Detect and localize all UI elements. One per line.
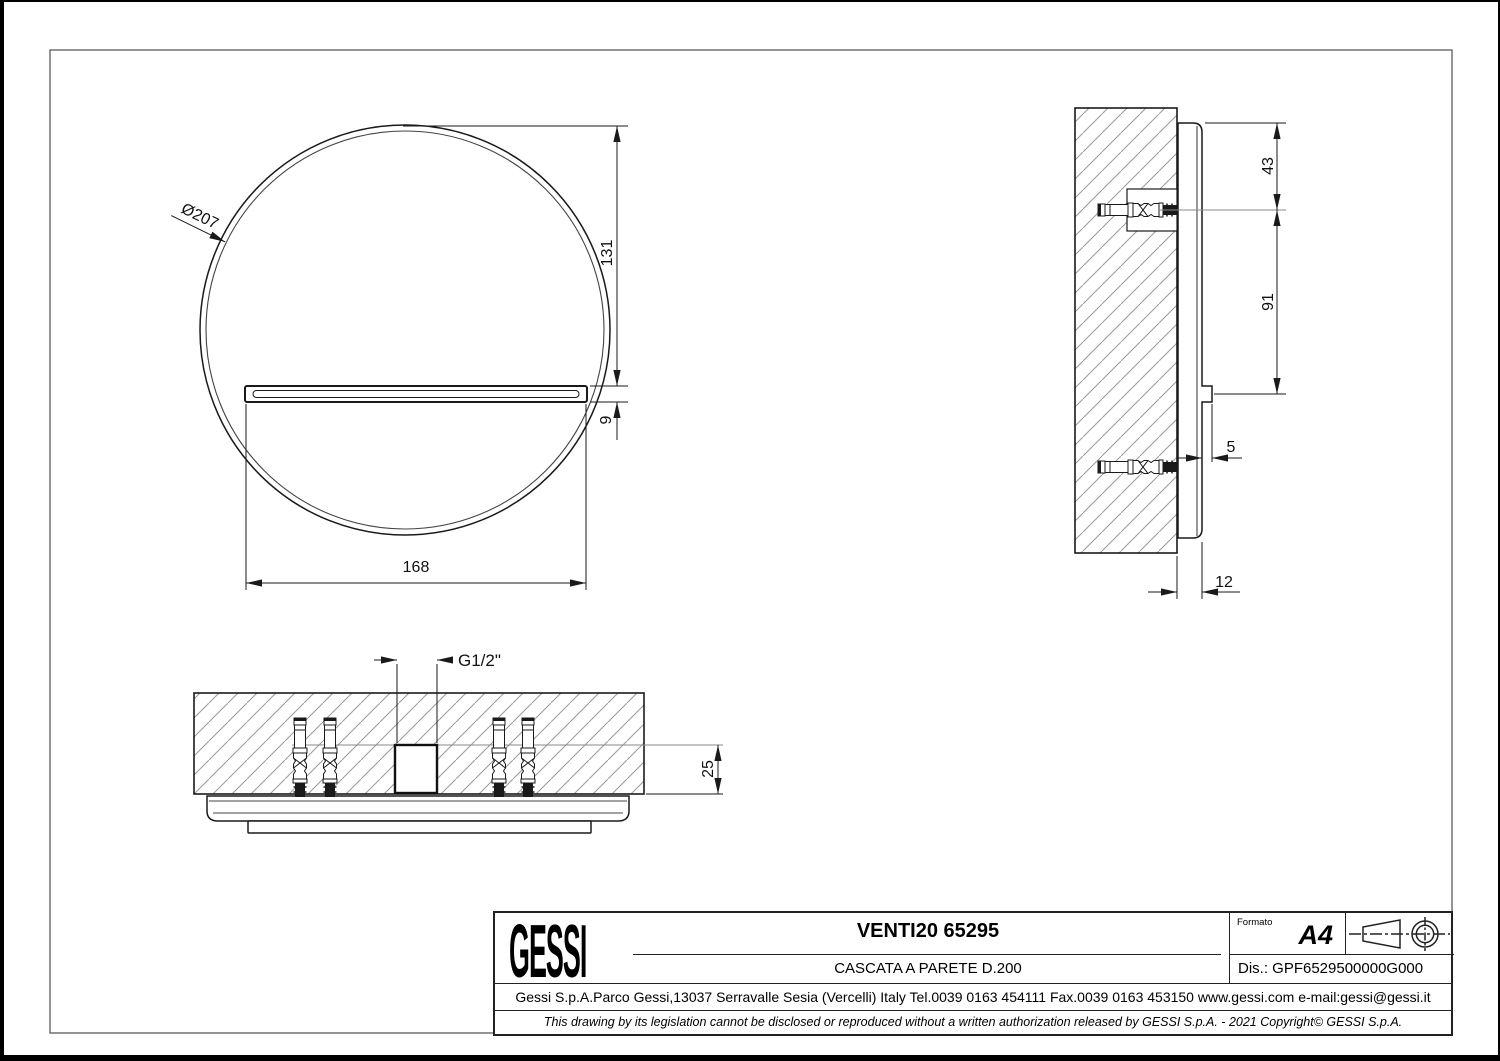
disc-plate-side <box>1178 123 1212 538</box>
title-area: VENTI20 65295 CASCATA A PARETE D.200 <box>627 913 1229 983</box>
disc-outer-circle <box>200 125 610 535</box>
disc-plate-bottom <box>207 796 629 821</box>
company-address: Gessi S.p.A.Parco Gessi,13037 Serravalle… <box>495 983 1451 1010</box>
diameter-leader: Ø207 <box>171 198 234 242</box>
spout-bar-bottom <box>248 821 591 833</box>
dim-diameter: Ø207 <box>178 200 221 232</box>
anchor-bolt-2 <box>323 718 337 797</box>
title-block: GESSI VENTI20 65295 CASCATA A PARETE D.2… <box>493 911 1453 1036</box>
dim-spout-projection-5: 5 <box>1227 439 1236 456</box>
dim-height-131: 131 <box>599 240 616 267</box>
anchor-bolt-3 <box>492 718 506 797</box>
drawing-canvas: Ø207 131 9 168 <box>4 2 1498 1055</box>
projection-symbol-cell <box>1345 913 1454 955</box>
spout-bar <box>245 386 587 402</box>
front-view: Ø207 131 9 168 <box>171 125 628 590</box>
bottom-view: G1/2" 25 <box>194 651 723 833</box>
legal-disclaimer: This drawing by its legislation cannot b… <box>495 1010 1451 1034</box>
dim-top-offset-43: 43 <box>1260 157 1277 175</box>
title-divider <box>633 954 1221 955</box>
sheet-border-frame <box>50 50 1452 1033</box>
format-label: Formato <box>1237 917 1272 928</box>
first-angle-projection-icon <box>1346 913 1453 953</box>
drawing-sheet: Ø207 131 9 168 <box>0 0 1500 1061</box>
dim-spout-width-168: 168 <box>403 559 430 576</box>
dim-recess-depth-25: 25 <box>700 760 717 778</box>
product-subtitle: CASCATA A PARETE D.200 <box>627 960 1229 977</box>
anchor-bolt-bottom <box>1098 460 1177 474</box>
dim-spout-height-9: 9 <box>598 415 615 424</box>
drawing-code: Dis.: GPF6529500000G000 <box>1230 955 1454 983</box>
dim-anchor-to-spout-91: 91 <box>1260 293 1277 311</box>
wall-section <box>1075 108 1177 553</box>
dim-inlet-thread: G1/2" <box>458 651 501 670</box>
anchor-bolt-4 <box>521 718 535 797</box>
gessi-logo: GESSI <box>509 923 586 980</box>
disc-inner-circle <box>206 131 604 529</box>
title-block-main-row: GESSI VENTI20 65295 CASCATA A PARETE D.2… <box>495 913 1451 983</box>
side-view: 43 91 5 12 <box>1075 108 1286 599</box>
inlet-square <box>395 745 437 793</box>
product-title: VENTI20 65295 <box>627 920 1229 943</box>
anchor-bolt-1 <box>293 718 307 797</box>
dim-plate-thickness-12: 12 <box>1215 574 1233 591</box>
format-cell: Formato A4 <box>1230 913 1345 955</box>
format-value: A4 <box>1298 920 1333 951</box>
